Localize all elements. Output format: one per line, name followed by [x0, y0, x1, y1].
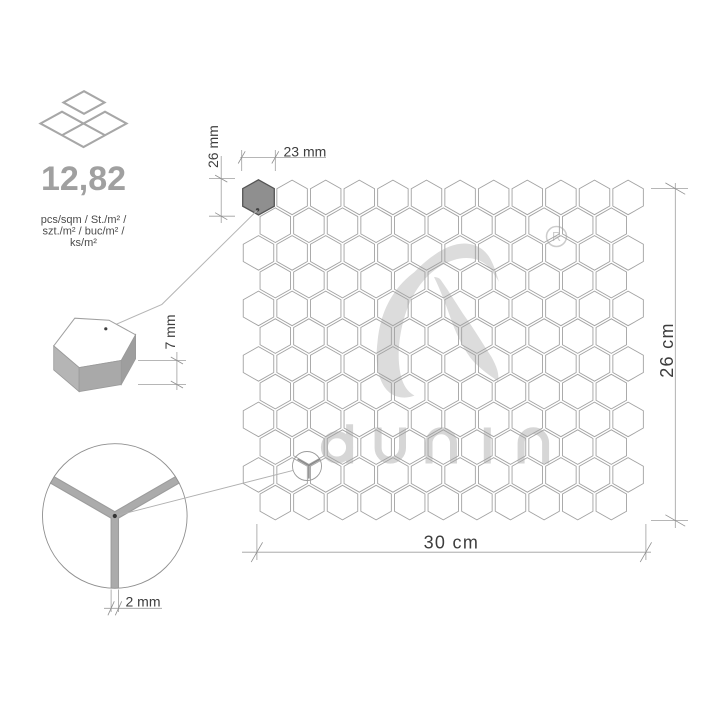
svg-text:30 cm: 30 cm — [424, 532, 480, 552]
svg-text:pcs/sqm / St./m² /: pcs/sqm / St./m² / — [41, 214, 128, 226]
svg-text:12,82: 12,82 — [41, 160, 126, 198]
svg-text:26 mm: 26 mm — [205, 125, 221, 168]
svg-text:26 cm: 26 cm — [657, 322, 677, 378]
svg-text:7 mm: 7 mm — [162, 315, 178, 350]
svg-text:2 mm: 2 mm — [126, 594, 161, 610]
svg-text:ks/m²: ks/m² — [70, 237, 97, 249]
svg-text:23 mm: 23 mm — [284, 143, 327, 159]
svg-text:szt./m² / buc/m² /: szt./m² / buc/m² / — [43, 225, 126, 237]
